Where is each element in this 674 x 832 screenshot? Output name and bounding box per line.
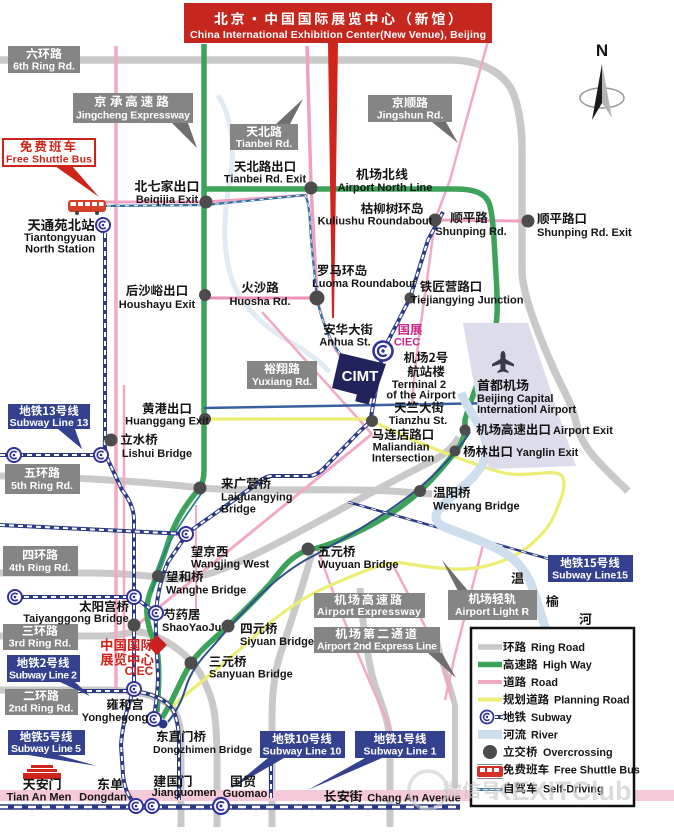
- svg-text:二环路: 二环路: [23, 687, 59, 704]
- svg-text:Subway Line 2: Subway Line 2: [9, 670, 77, 682]
- svg-text:Airport Expressway: Airport Expressway: [317, 606, 421, 618]
- svg-text:京顺路: 京顺路: [392, 94, 428, 111]
- svg-text:Overcrossing: Overcrossing: [543, 747, 613, 759]
- svg-text:机场轻轨: 机场轻轨: [468, 590, 517, 607]
- svg-text:Airport Exit: Airport Exit: [553, 425, 613, 437]
- svg-text:四元桥: 四元桥: [240, 618, 278, 637]
- svg-text:Dongdan: Dongdan: [79, 792, 127, 804]
- svg-text:东单: 东单: [97, 774, 123, 793]
- svg-text:机场北线: 机场北线: [356, 164, 408, 183]
- svg-text:Bridge: Bridge: [221, 504, 256, 516]
- svg-text:三元桥: 三元桥: [209, 651, 247, 670]
- svg-text:Tiantongyuan: Tiantongyuan: [24, 232, 96, 244]
- svg-text:Road: Road: [531, 677, 558, 689]
- svg-text:Wanghe Bridge: Wanghe Bridge: [166, 585, 246, 597]
- svg-text:Airport Light R: Airport Light R: [455, 606, 529, 618]
- svg-text:River: River: [531, 730, 559, 742]
- svg-text:2nd Ring Rd.: 2nd Ring Rd.: [9, 703, 74, 715]
- svg-text:机场第二通道: 机场第二通道: [335, 625, 419, 642]
- svg-text:国展: 国展: [397, 319, 422, 338]
- svg-text:航站楼: 航站楼: [407, 361, 445, 380]
- svg-text:顺平路口: 顺平路口: [537, 208, 587, 227]
- svg-text:天北路出口: 天北路出口: [234, 156, 297, 175]
- svg-text:Houshayu Exit: Houshayu Exit: [119, 299, 196, 311]
- svg-text:Luoma Roundabout: Luoma Roundabout: [312, 278, 416, 290]
- svg-text:Free Shuttle Bus: Free Shuttle Bus: [554, 765, 640, 777]
- svg-text:京承高速路: 京承高速路: [94, 91, 172, 110]
- svg-text:Wenyang Bridge: Wenyang Bridge: [433, 501, 520, 513]
- svg-text:Siyuan Bridge: Siyuan Bridge: [240, 636, 314, 648]
- svg-text:6th Ring Rd.: 6th Ring Rd.: [13, 61, 75, 73]
- svg-text:四环路: 四环路: [22, 546, 58, 563]
- svg-text:Airport 2nd Express Line: Airport 2nd Express Line: [317, 641, 437, 653]
- svg-text:杨林出口: 杨林出口: [463, 441, 513, 460]
- svg-text:机场高速出口: 机场高速出口: [476, 419, 551, 438]
- svg-text:Yonghegong: Yonghegong: [82, 712, 148, 724]
- svg-text:Beiqijia Exit: Beiqijia Exit: [136, 194, 199, 206]
- svg-text:5th Ring Rd.: 5th Ring Rd.: [11, 480, 73, 492]
- svg-text:Subway Line 1: Subway Line 1: [364, 746, 437, 758]
- svg-text:China International Exhibition: China International Exhibition Center(Ne…: [190, 29, 486, 41]
- svg-text:Tian An Men: Tian An Men: [7, 792, 72, 804]
- svg-text:雍和宫: 雍和宫: [106, 694, 144, 713]
- svg-text:五元桥: 五元桥: [318, 541, 356, 560]
- svg-text:马连店路口: 马连店路口: [372, 424, 435, 443]
- svg-text:CIMT: CIMT: [342, 368, 379, 385]
- svg-text:Anhua St.: Anhua St.: [319, 337, 370, 349]
- svg-text:3rd Ring Rd.: 3rd Ring Rd.: [9, 638, 71, 650]
- svg-text:Tianbei Rd. Exit: Tianbei Rd. Exit: [224, 174, 307, 186]
- svg-text:北京·中国国际展览中心（新馆）: 北京·中国国际展览中心（新馆）: [214, 9, 462, 29]
- svg-text:Subway Line 10: Subway Line 10: [263, 746, 342, 758]
- svg-text:Subway Line15: Subway Line15: [552, 570, 628, 582]
- svg-text:环路: 环路: [503, 639, 526, 655]
- svg-text:Tianbei Rd.: Tianbei Rd.: [236, 138, 292, 150]
- svg-text:枯柳树环岛: 枯柳树环岛: [361, 198, 424, 217]
- svg-text:Wuyuan Bridge: Wuyuan Bridge: [318, 559, 398, 571]
- svg-text:望和桥: 望和桥: [166, 566, 204, 585]
- svg-text:Lishui Bridge: Lishui Bridge: [122, 448, 192, 460]
- svg-text:罗马环岛: 罗马环岛: [317, 260, 367, 279]
- svg-text:Huanggang Exit: Huanggang Exit: [125, 416, 209, 428]
- svg-text:Huosha Rd.: Huosha Rd.: [229, 296, 290, 308]
- svg-text:Guomao: Guomao: [223, 788, 268, 800]
- svg-text:铁匠营路口: 铁匠营路口: [420, 276, 483, 295]
- svg-text:Yanglin Exit: Yanglin Exit: [516, 447, 579, 459]
- svg-text:North Station: North Station: [25, 244, 95, 256]
- svg-text:Intersection: Intersection: [372, 453, 435, 465]
- svg-text:ShaoYaoJu: ShaoYaoJu: [162, 622, 221, 634]
- svg-text:Free Shuttle Bus: Free Shuttle Bus: [6, 154, 92, 166]
- svg-text:长安街: 长安街: [323, 786, 362, 805]
- svg-text:Yuxiang Rd.: Yuxiang Rd.: [252, 376, 312, 388]
- svg-text:东直门桥: 东直门桥: [156, 726, 207, 745]
- svg-text:KEXITClub: KEXITClub: [492, 776, 632, 806]
- svg-text:榆: 榆: [546, 591, 559, 610]
- svg-text:温阳桥: 温阳桥: [433, 482, 471, 501]
- svg-text:Subway Line 13: Subway Line 13: [10, 417, 89, 429]
- svg-text:来广营桥: 来广营桥: [221, 473, 272, 492]
- svg-text:Taiyanggong Bridge: Taiyanggong Bridge: [23, 613, 129, 625]
- svg-text:Dongzhimen Bridge: Dongzhimen Bridge: [153, 744, 252, 756]
- svg-text:首都机场: 首都机场: [477, 375, 529, 394]
- svg-text:立水桥: 立水桥: [120, 429, 158, 448]
- svg-text:天通苑北站: 天通苑北站: [27, 214, 95, 234]
- svg-text:天竺大街: 天竺大街: [394, 397, 445, 416]
- svg-text:安华大街: 安华大街: [323, 319, 374, 338]
- svg-text:芍药居: 芍药居: [163, 604, 201, 623]
- svg-text:Jingcheng Expressway: Jingcheng Expressway: [76, 110, 190, 122]
- svg-text:4th Ring Rd.: 4th Ring Rd.: [9, 562, 71, 574]
- svg-text:Sanyuan Bridge: Sanyuan Bridge: [209, 669, 293, 681]
- svg-text:北七家出口: 北七家出口: [134, 176, 199, 195]
- svg-text:Planning Road: Planning Road: [554, 695, 630, 707]
- svg-text:温: 温: [511, 568, 524, 587]
- svg-text:Jingshun Rd.: Jingshun Rd.: [377, 110, 444, 122]
- svg-text:High Way: High Way: [543, 660, 592, 672]
- svg-text:Airport North Line: Airport North Line: [338, 182, 433, 194]
- svg-text:河: 河: [579, 609, 592, 628]
- svg-text:黄港出口: 黄港出口: [142, 398, 192, 417]
- svg-text:CIEC: CIEC: [125, 664, 154, 678]
- svg-text:Shunping Rd.: Shunping Rd.: [435, 226, 506, 238]
- svg-text:规划道路: 规划道路: [503, 692, 549, 708]
- svg-text:Tiejiangying Junction: Tiejiangying Junction: [411, 295, 524, 307]
- svg-text:Kuliushu Roundabout: Kuliushu Roundabout: [318, 216, 433, 228]
- svg-text:Internationl Airport: Internationl Airport: [477, 404, 577, 416]
- svg-text:Shunping Rd. Exit: Shunping Rd. Exit: [537, 227, 632, 239]
- svg-text:Subway: Subway: [531, 712, 572, 724]
- svg-text:Laiguangying: Laiguangying: [221, 492, 293, 504]
- svg-text:Jianguomen: Jianguomen: [152, 787, 217, 799]
- svg-text:Subway Line 5: Subway Line 5: [11, 743, 81, 755]
- svg-text:Ring Road: Ring Road: [531, 642, 585, 654]
- svg-text:N: N: [596, 41, 608, 60]
- svg-text:五环路: 五环路: [24, 464, 60, 481]
- svg-text:地铁: 地铁: [503, 709, 526, 725]
- svg-text:裕翔路: 裕翔路: [264, 360, 300, 377]
- svg-text:立交桥: 立交桥: [503, 744, 538, 760]
- svg-text:望京西: 望京西: [191, 541, 229, 560]
- svg-text:道路: 道路: [503, 674, 526, 690]
- svg-text:六环路: 六环路: [26, 45, 62, 62]
- svg-text:河流: 河流: [503, 727, 526, 743]
- svg-text:免费班车: 免费班车: [20, 136, 78, 155]
- svg-text:火沙路: 火沙路: [241, 277, 279, 296]
- svg-text:高速路: 高速路: [503, 657, 538, 673]
- svg-text:顺平路: 顺平路: [450, 207, 488, 226]
- svg-text:天安门: 天安门: [22, 774, 61, 793]
- svg-text:后沙峪出口: 后沙峪出口: [126, 280, 189, 299]
